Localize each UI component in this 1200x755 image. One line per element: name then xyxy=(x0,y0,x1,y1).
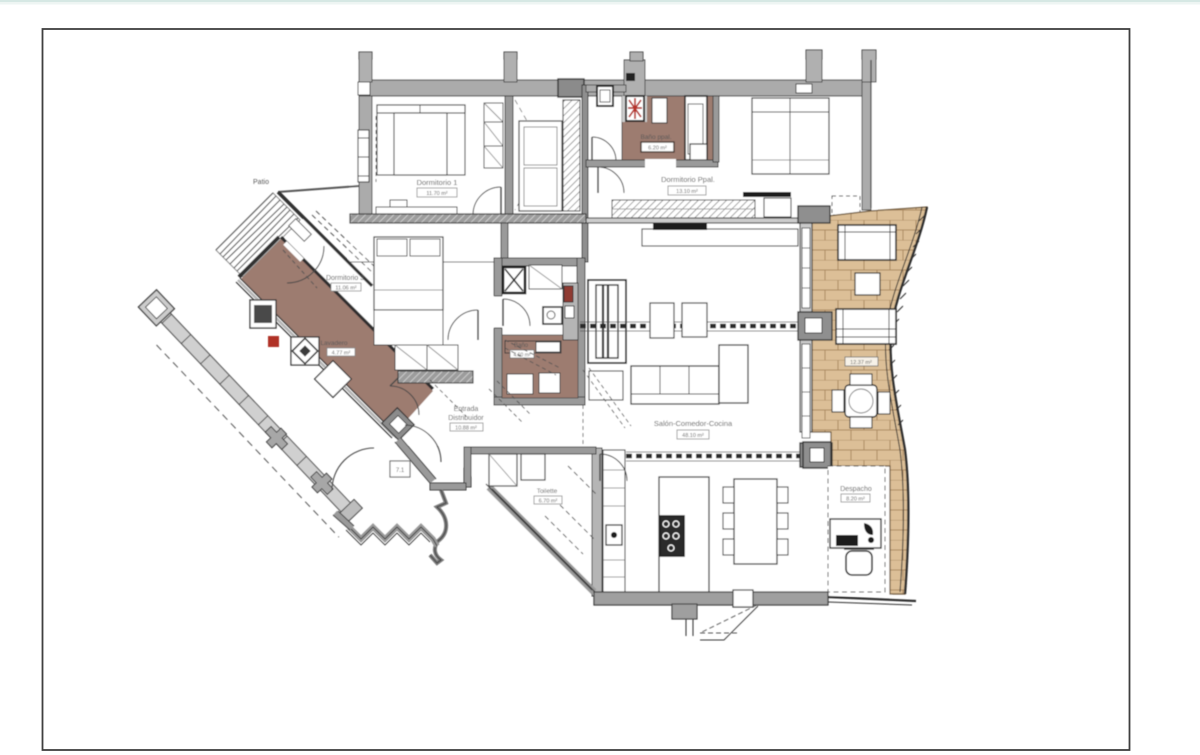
svg-text:Dormitorio 3: Dormitorio 3 xyxy=(326,275,364,282)
svg-text:Toilette: Toilette xyxy=(537,488,558,495)
svg-text:Baño ppal.: Baño ppal. xyxy=(640,134,671,141)
svg-text:12.37 m²: 12.37 m² xyxy=(850,360,872,366)
svg-text:8.20 m²: 8.20 m² xyxy=(846,497,865,503)
svg-text:Dormitorio Ppal.: Dormitorio Ppal. xyxy=(661,175,715,184)
svg-text:48.10 m²: 48.10 m² xyxy=(682,433,704,439)
svg-text:Despacho: Despacho xyxy=(840,486,872,493)
svg-text:7.1: 7.1 xyxy=(396,468,405,474)
svg-text:Distribuidor: Distribuidor xyxy=(448,415,484,422)
svg-text:Lavadero: Lavadero xyxy=(320,340,347,347)
svg-text:13.10 m²: 13.10 m² xyxy=(676,189,698,195)
svg-text:6.20 m²: 6.20 m² xyxy=(648,146,667,152)
svg-text:4.60 m²: 4.60 m² xyxy=(514,353,531,359)
svg-text:Dormitorio 1: Dormitorio 1 xyxy=(417,178,458,187)
svg-text:6.70 m²: 6.70 m² xyxy=(539,499,558,505)
svg-text:4.77 m²: 4.77 m² xyxy=(332,351,351,357)
svg-text:Patio: Patio xyxy=(253,179,269,186)
svg-text:11.70 m²: 11.70 m² xyxy=(426,191,447,197)
svg-text:Salón-Comedor-Cocina: Salón-Comedor-Cocina xyxy=(654,419,733,428)
svg-text:10.88 m²: 10.88 m² xyxy=(455,426,477,432)
svg-text:Baño: Baño xyxy=(514,343,529,349)
svg-text:11.06 m²: 11.06 m² xyxy=(335,286,356,292)
